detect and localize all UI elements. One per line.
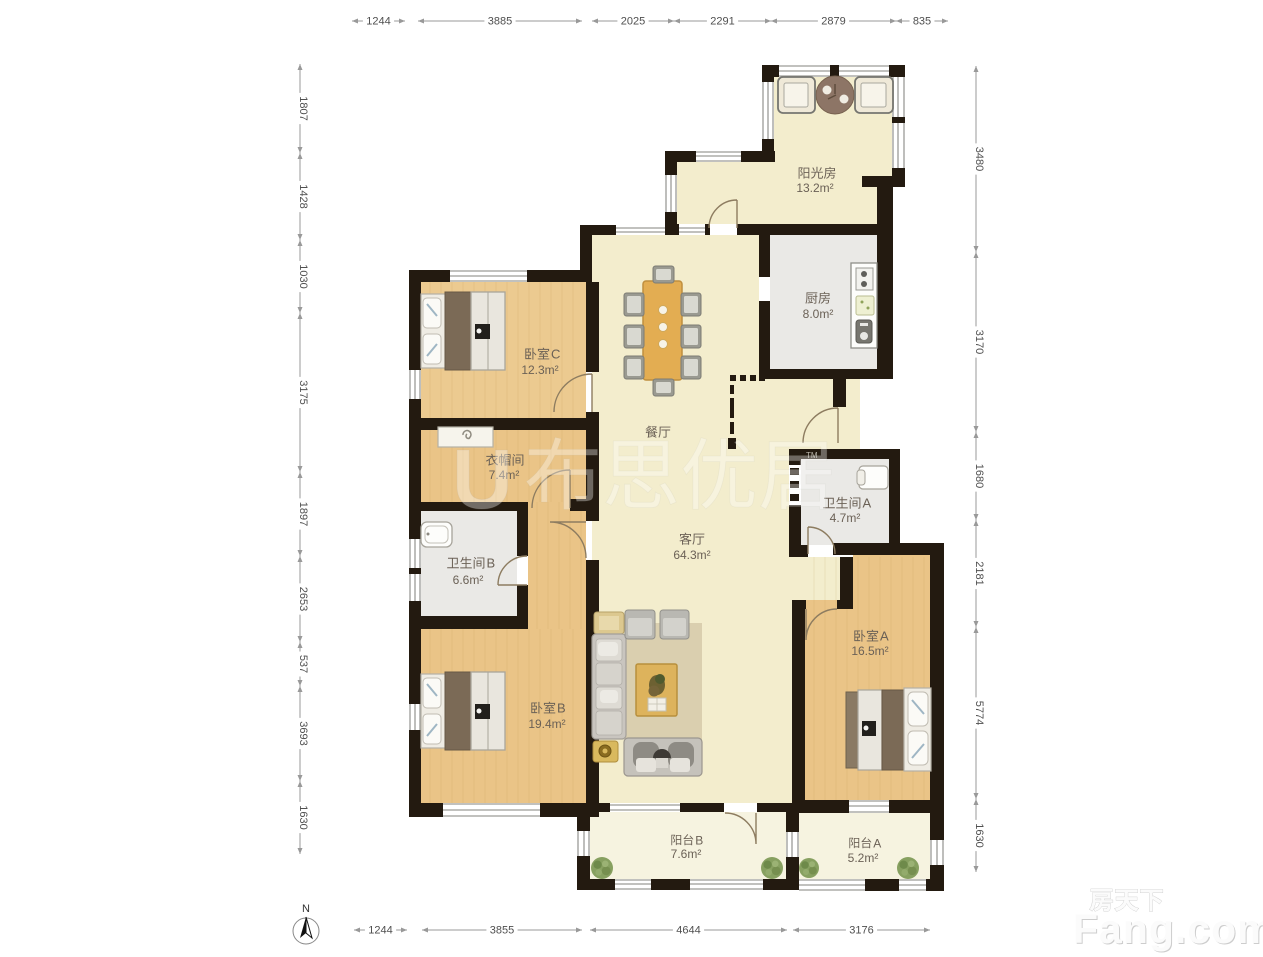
svg-text:1244: 1244 (366, 16, 390, 28)
svg-text:1630: 1630 (297, 805, 309, 829)
svg-text:2025: 2025 (621, 16, 645, 28)
svg-text:1630: 1630 (973, 823, 985, 847)
svg-text:3855: 3855 (490, 925, 514, 937)
svg-text:C: C (551, 347, 560, 362)
svg-text:16.5m²: 16.5m² (851, 644, 888, 658)
svg-text:3480: 3480 (973, 147, 985, 171)
svg-text:8.0m²: 8.0m² (803, 307, 834, 321)
svg-text:1030: 1030 (297, 264, 309, 288)
svg-text:5.2m²: 5.2m² (848, 851, 879, 865)
svg-text:U: U (452, 432, 513, 526)
svg-text:3176: 3176 (849, 925, 873, 937)
svg-text:1244: 1244 (368, 925, 392, 937)
svg-text:A: A (873, 836, 881, 850)
svg-text:2291: 2291 (710, 16, 734, 28)
svg-text:64.3m²: 64.3m² (673, 548, 710, 562)
svg-text:12.3m²: 12.3m² (521, 363, 558, 377)
svg-text:Fang.com: Fang.com (1073, 906, 1263, 952)
svg-text:7.6m²: 7.6m² (671, 847, 702, 861)
svg-text:835: 835 (913, 16, 931, 28)
svg-text:13.2m²: 13.2m² (796, 181, 833, 195)
svg-text:4644: 4644 (676, 925, 700, 937)
svg-text:6.6m²: 6.6m² (453, 573, 484, 587)
svg-text:1897: 1897 (297, 502, 309, 526)
svg-text:3885: 3885 (488, 16, 512, 28)
svg-text:5774: 5774 (973, 701, 985, 725)
svg-text:B: B (487, 556, 496, 571)
svg-text:3693: 3693 (297, 721, 309, 745)
svg-text:2181: 2181 (973, 561, 985, 585)
svg-text:1428: 1428 (297, 184, 309, 208)
svg-text:2879: 2879 (821, 16, 845, 28)
svg-text:19.4m²: 19.4m² (528, 717, 565, 731)
svg-text:B: B (695, 833, 703, 847)
svg-text:1807: 1807 (297, 96, 309, 120)
svg-text:3170: 3170 (973, 330, 985, 354)
svg-text:4.7m²: 4.7m² (830, 511, 861, 525)
svg-text:A: A (863, 496, 872, 511)
svg-text:1680: 1680 (973, 464, 985, 488)
svg-text:B: B (557, 701, 566, 716)
svg-text:2653: 2653 (297, 587, 309, 611)
svg-text:A: A (880, 629, 889, 644)
svg-text:3175: 3175 (297, 380, 309, 404)
svg-text:N: N (302, 903, 310, 915)
svg-text:537: 537 (297, 655, 309, 673)
